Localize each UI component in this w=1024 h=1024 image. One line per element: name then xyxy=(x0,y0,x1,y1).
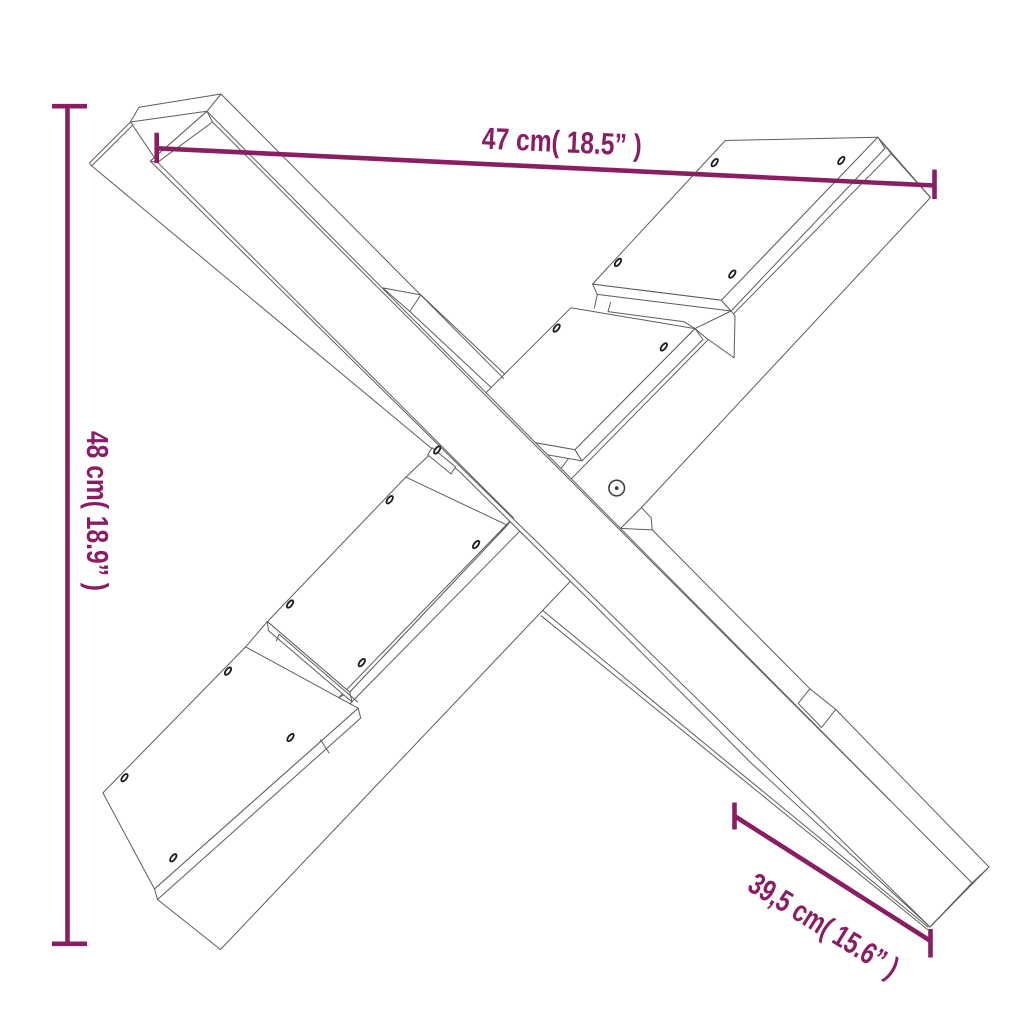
svg-text:47 cm( 18.5” ): 47 cm( 18.5” ) xyxy=(481,122,642,163)
svg-text:48 cm( 18.9” ): 48 cm( 18.9” ) xyxy=(80,431,114,591)
